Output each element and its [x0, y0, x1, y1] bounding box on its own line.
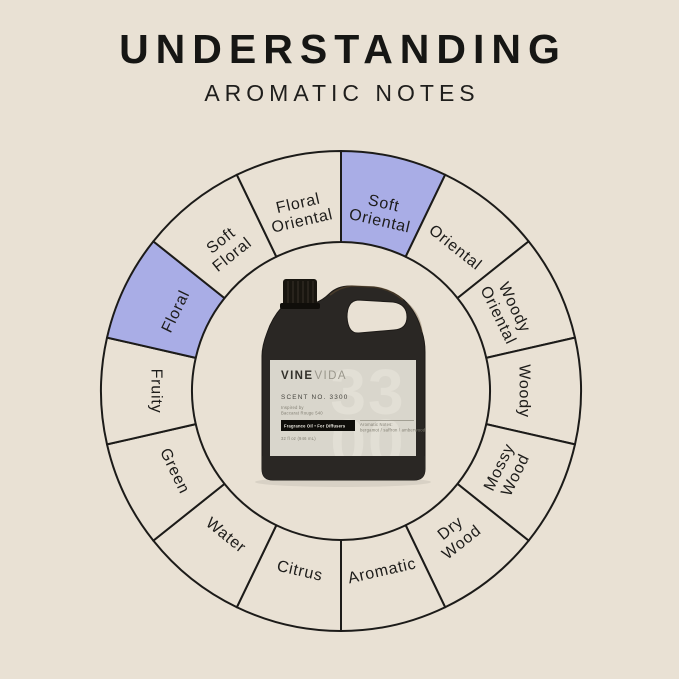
wheel-segment-label: Fruity [148, 369, 165, 414]
wheel-scene: SoftOrientalOrientalWoodyOrientalWoodyMo… [0, 0, 679, 679]
bottle-bottom-band [262, 456, 425, 480]
size-text: 32 fl oz (946 mL) [281, 436, 316, 441]
brand-logo: VINEVIDA [281, 370, 347, 382]
notes-label: Aromatic Notes: [360, 422, 393, 427]
notes-value: bergamot / saffron / amberwood [360, 428, 426, 433]
cap-lip [280, 303, 320, 309]
scent-number: SCENT NO. 3300 [281, 394, 348, 401]
inspired-line1: Inspired by [281, 405, 304, 410]
badge-text: Fragrance Oil • For Diffusers [284, 423, 346, 428]
wheel-segment-label: Woody [516, 364, 533, 418]
aromatic-notes-infographic: UNDERSTANDING AROMATIC NOTES SoftOrienta… [0, 0, 679, 679]
product-bottle: 33 00 VINEVIDA SCENT NO. 3300 Inspired b… [255, 279, 431, 487]
inspired-line2: Baccarat Rouge 540 [281, 411, 323, 416]
